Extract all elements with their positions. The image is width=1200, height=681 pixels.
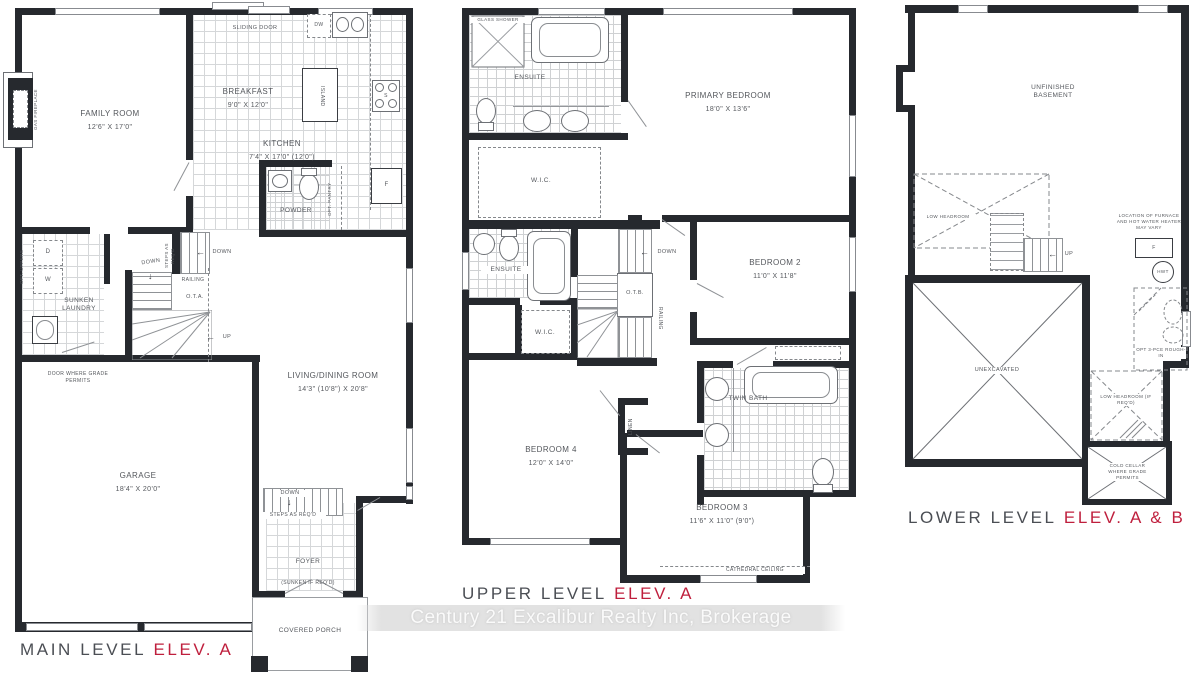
furnace-note: LOCATION OF FURNACE AND HOT WATER HEATER… [1116, 213, 1182, 231]
cold-cellar-label: COLD CELLAR WHERE GRADE PERMITS [1100, 463, 1155, 481]
wall [896, 105, 915, 112]
wall [1163, 368, 1170, 448]
lower-level-plan: UNEXCAVATED LOW HEADROOM ← UP LOCATION O… [0, 0, 1200, 681]
up-label: UP [1060, 251, 1078, 258]
left-arrow-icon: ← [1048, 250, 1057, 259]
unfinished-basement-label: UNFINISHED BASEMENT [1011, 84, 1095, 101]
wall [896, 65, 915, 72]
brokerage-watermark: Century 21 Excalibur Realty Inc, Brokera… [357, 605, 845, 631]
low-headroom-label: LOW HEADROOM [920, 214, 976, 220]
window [958, 5, 988, 13]
wall [908, 5, 915, 72]
floor-plan-sheet: GAS FIREPLACE DW ISLAND S F OPT. PANTRY … [0, 0, 1200, 681]
low-headroom2-label: LOW HEADROOM (IF REQ'D) [1096, 394, 1156, 406]
hwt-label: HWT [1152, 269, 1174, 275]
window [1138, 5, 1168, 13]
wall [1181, 5, 1189, 313]
lower-level-title: LOWER LEVEL ELEV. A & B [908, 508, 1185, 528]
rough-in-label: OPT 3-PCE ROUGH-IN [1136, 347, 1186, 359]
furnace-label: F [1135, 245, 1173, 252]
unexcavated-label: UNEXCAVATED [962, 367, 1032, 374]
stair-landing [990, 213, 1024, 271]
stairs-up [1023, 238, 1063, 272]
